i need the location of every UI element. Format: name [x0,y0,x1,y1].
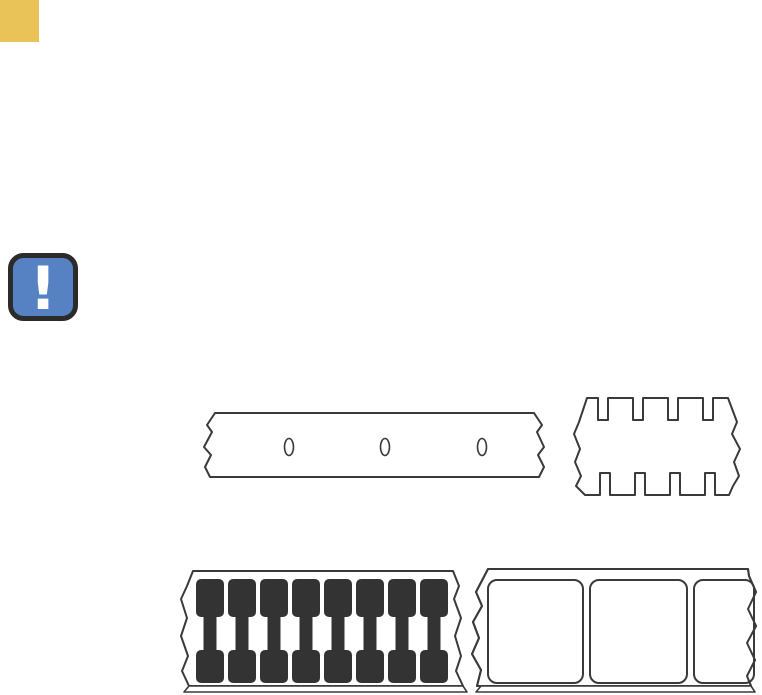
page-corner-accent [0,0,39,42]
manual-page: ! [0,0,762,695]
black-mark-media-svg [178,566,468,695]
notched-media-svg [571,394,743,500]
label-on-liner [694,580,754,683]
perforation-hole [381,439,390,456]
perforation-hole [478,439,487,456]
exclamation-glyph: ! [29,254,56,322]
black-mark-media-illustration [178,566,468,695]
perforation-hole [285,439,294,456]
label-on-liner [488,580,583,683]
perforated-media-outline [204,413,544,477]
perforated-media-svg [202,409,547,481]
gap-labels [488,580,754,683]
gap-web-media-svg [468,564,762,695]
notched-media-outline [574,398,740,495]
gap-media-liner-band [476,686,755,692]
exclamation-icon: ! [7,252,79,322]
perforated-media-illustration [202,409,547,481]
notched-media-illustration [571,394,743,500]
label-on-liner [590,580,687,683]
important-note-icon: ! [7,252,79,322]
black-mark-liner-band [184,686,467,692]
gap-web-media-illustration [468,564,762,695]
